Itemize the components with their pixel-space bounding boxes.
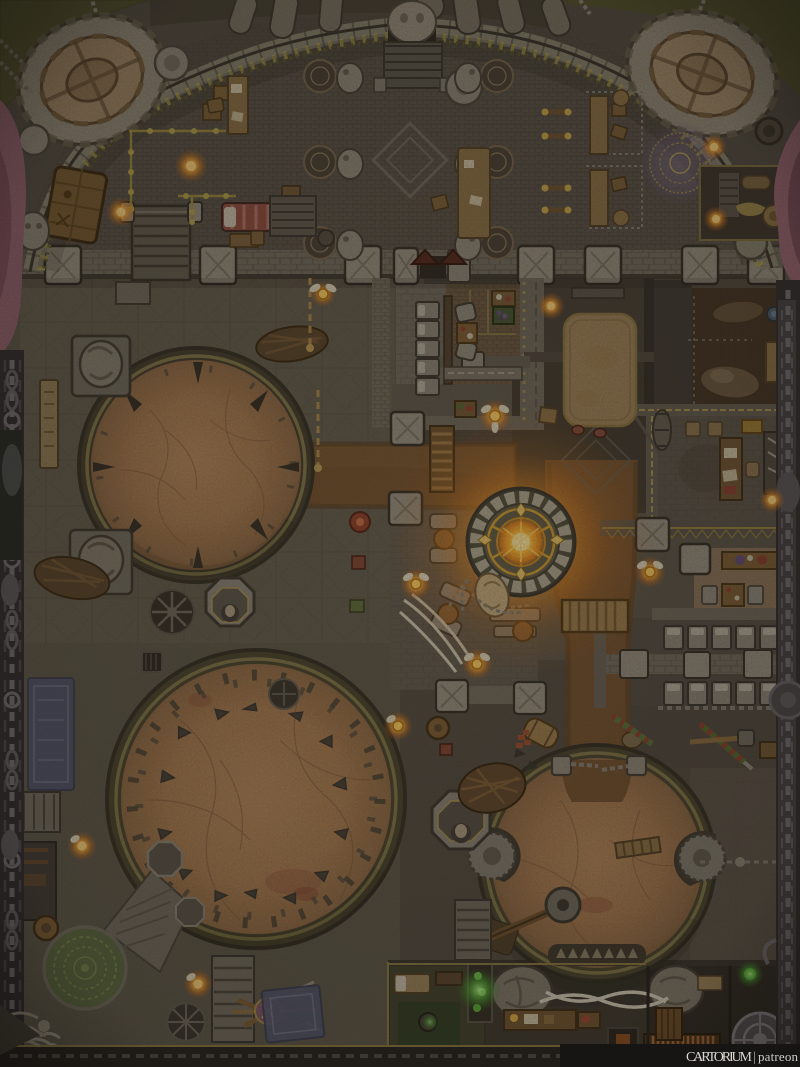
svg-text:|: | <box>753 1049 756 1064</box>
svg-text:patreon: patreon <box>758 1049 799 1064</box>
svg-text:CARTORIUM: CARTORIUM <box>686 1050 753 1065</box>
